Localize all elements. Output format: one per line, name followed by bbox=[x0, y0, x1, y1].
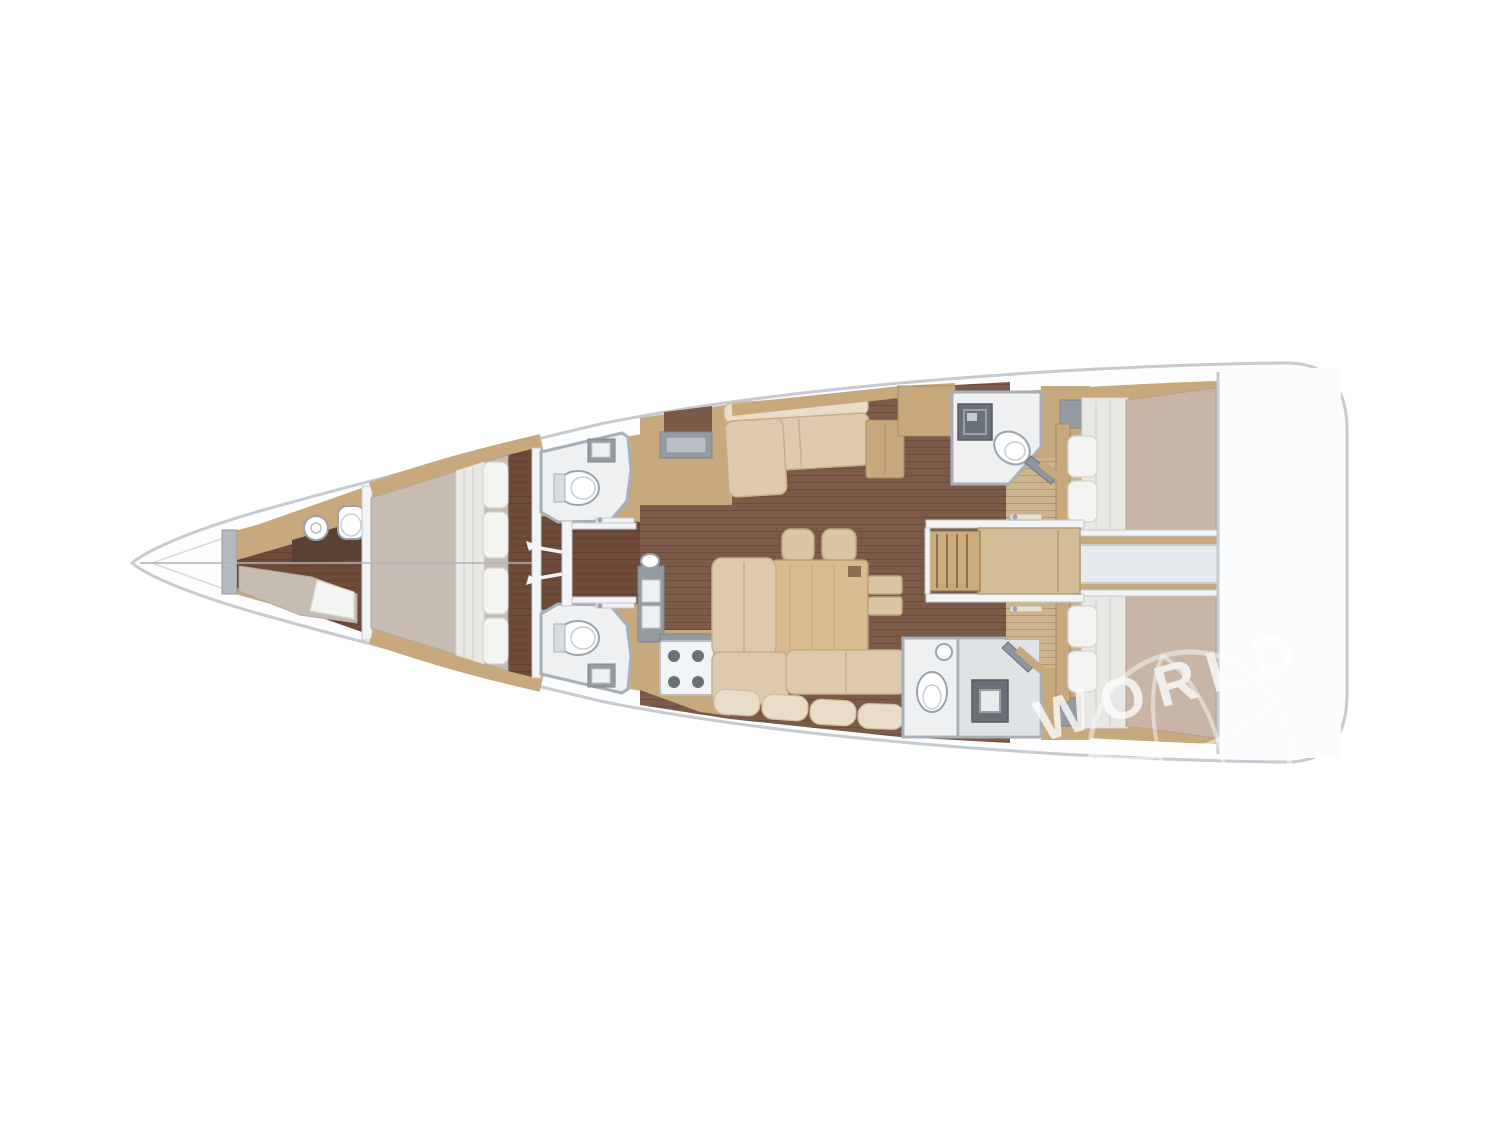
settee-back-cushion-3 bbox=[809, 699, 856, 726]
aft-bed-top-blanket bbox=[1126, 388, 1216, 531]
forepeak-sink bbox=[304, 516, 328, 540]
top-head-wall bbox=[572, 523, 636, 529]
forward-corridor-planks bbox=[536, 516, 640, 610]
aft-head-bottom-toilet bbox=[917, 672, 947, 712]
stool-2 bbox=[822, 529, 856, 562]
top-head-toilet-tank bbox=[554, 474, 565, 502]
mast-post bbox=[562, 521, 572, 606]
bottom-head-wall bbox=[572, 597, 636, 603]
aft-bed-top-pillow-2 bbox=[1068, 481, 1097, 522]
cube-seat-1 bbox=[868, 576, 902, 594]
cube-seat-2 bbox=[868, 597, 902, 615]
port-sofa-chaise bbox=[725, 418, 788, 497]
top-head-door-handle bbox=[598, 518, 603, 523]
settee-back-cushion-1 bbox=[713, 688, 761, 716]
bottom-head-sink bbox=[592, 669, 610, 683]
yacht-floor-plan-page: WORLD bbox=[0, 0, 1500, 1125]
top-head-sink bbox=[592, 443, 610, 457]
aft-cabin-bottom-door-handle bbox=[1013, 607, 1018, 612]
forward-berth-pillow-3 bbox=[483, 568, 508, 614]
forward-berth-pillow-4 bbox=[483, 618, 508, 664]
companionway-stairs bbox=[928, 531, 980, 591]
companionway-top-wall bbox=[926, 520, 1084, 528]
settee-back-cushion-2 bbox=[761, 693, 809, 721]
fridge-door-2 bbox=[642, 606, 660, 628]
aft-cabin-top-wall bbox=[1080, 530, 1218, 536]
stove-burner-3 bbox=[668, 676, 680, 688]
stair-rail-left bbox=[925, 528, 930, 594]
settee-back-cushion-4 bbox=[858, 703, 905, 730]
aft-head-top-shower-head bbox=[967, 413, 977, 421]
galley-counter-column bbox=[638, 566, 664, 642]
aft-head-bottom-sink bbox=[936, 644, 952, 660]
bow-bulkhead bbox=[222, 530, 237, 594]
companionway-platform bbox=[978, 528, 1080, 594]
stove-burner-2 bbox=[692, 650, 704, 662]
bottom-head-door-handle bbox=[598, 604, 603, 609]
aft-head-bottom bbox=[903, 638, 1045, 737]
aft-galley-cabinet-top bbox=[898, 386, 955, 436]
stove-burner-4 bbox=[692, 676, 704, 688]
forward-berth-pillow-2 bbox=[483, 512, 508, 558]
stern-lazarette bbox=[1221, 368, 1341, 758]
aft-bed-top-pillow-1 bbox=[1068, 436, 1097, 477]
nav-counter-top bbox=[666, 437, 706, 453]
forward-berth-pillow-1 bbox=[483, 462, 508, 508]
bottom-head-toilet-tank bbox=[554, 624, 565, 652]
yacht-interior-floor-plan: WORLD bbox=[0, 0, 1500, 1125]
fridge-door-1 bbox=[642, 580, 660, 602]
stove-back-strip bbox=[660, 634, 714, 641]
aft-cabin-bottom-wall bbox=[1080, 590, 1218, 596]
aft-cabin-top-door-handle bbox=[1013, 515, 1018, 520]
stool-1 bbox=[782, 529, 814, 562]
aft-head-bottom-shower-tray bbox=[980, 690, 1000, 712]
stove-burner-1 bbox=[668, 650, 680, 662]
galley-sink bbox=[641, 554, 659, 568]
stove bbox=[660, 641, 714, 695]
companionway-bottom-wall bbox=[926, 594, 1084, 602]
table-tray bbox=[848, 566, 861, 577]
engine-compartment bbox=[1080, 545, 1218, 583]
aft-bed-bottom-pillow-1 bbox=[1068, 606, 1097, 647]
